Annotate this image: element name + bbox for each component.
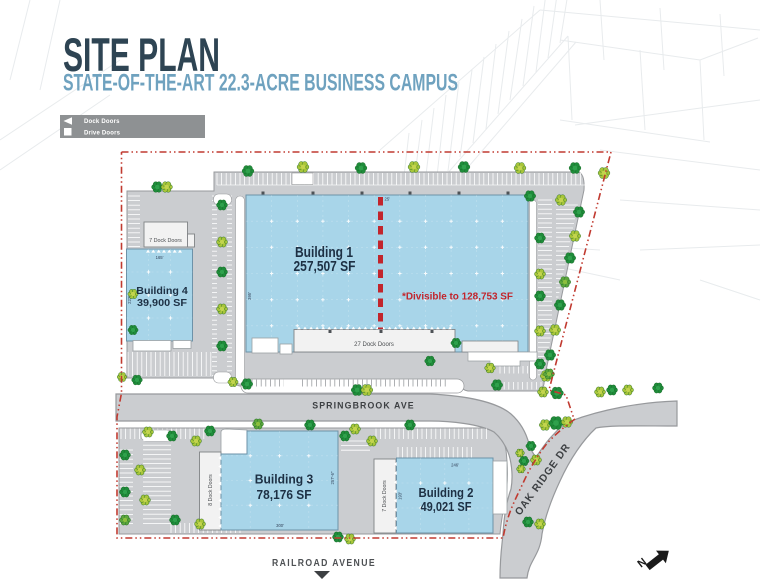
svg-text:Building 4: Building 4 — [136, 285, 188, 297]
svg-text:49,021 SF: 49,021 SF — [421, 499, 472, 514]
svg-text:165′: 165′ — [156, 255, 164, 260]
svg-text:78,176 SF: 78,176 SF — [257, 487, 312, 502]
svg-text:25′: 25′ — [385, 197, 391, 202]
svg-text:300′: 300′ — [276, 523, 284, 528]
svg-text:N: N — [635, 556, 649, 570]
svg-text:RAILROAD AVENUE: RAILROAD AVENUE — [272, 558, 376, 569]
svg-text:STATE-OF-THE-ART 22.3-ACRE BUS: STATE-OF-THE-ART 22.3-ACRE BUSINESS CAMP… — [63, 70, 458, 97]
svg-text:39,900 SF: 39,900 SF — [137, 297, 188, 309]
svg-text:7 Dock Doors: 7 Dock Doors — [149, 238, 182, 244]
svg-text:257,507 SF: 257,507 SF — [294, 259, 356, 275]
svg-text:Drive Doors: Drive Doors — [84, 131, 121, 137]
svg-text:246′: 246′ — [451, 463, 459, 468]
svg-text:193′: 193′ — [398, 492, 403, 500]
svg-text:257′-6″: 257′-6″ — [330, 471, 335, 484]
svg-text:Building 2: Building 2 — [419, 485, 474, 500]
svg-text:8 Dock Doors: 8 Dock Doors — [208, 474, 214, 506]
svg-text:SPRINGBROOK AVE: SPRINGBROOK AVE — [312, 401, 415, 412]
svg-text:395′: 395′ — [247, 292, 252, 300]
svg-text:Dock Doors: Dock Doors — [84, 119, 120, 125]
svg-text:7 Dock Doors: 7 Dock Doors — [382, 480, 388, 512]
svg-text:*Divisible to 128,753 SF: *Divisible to 128,753 SF — [402, 292, 513, 303]
svg-text:27 Dock Doors: 27 Dock Doors — [354, 342, 394, 348]
svg-text:Building 3: Building 3 — [255, 472, 314, 487]
